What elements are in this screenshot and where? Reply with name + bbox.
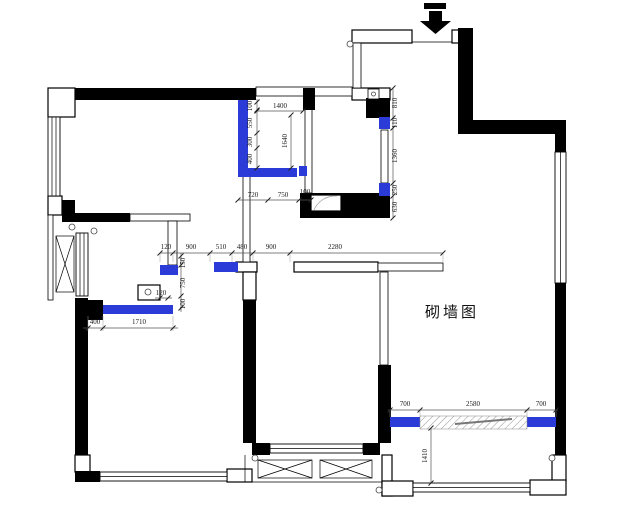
dim-label: 700 bbox=[536, 400, 547, 408]
dim-label: 750 bbox=[179, 277, 187, 288]
dim-label: 900 bbox=[266, 243, 277, 251]
dim-label: 1710 bbox=[132, 318, 147, 326]
dim-label: 720 bbox=[248, 191, 259, 199]
dim-label: 810 bbox=[391, 97, 399, 108]
dim-label: 480 bbox=[237, 243, 248, 251]
watermark-hatch bbox=[420, 416, 527, 429]
paper-background bbox=[0, 0, 640, 515]
dim-label: 120 bbox=[156, 289, 167, 297]
dim-label: 120 bbox=[161, 243, 172, 251]
dim-label: 630 bbox=[391, 201, 399, 212]
dim-label: 2280 bbox=[328, 243, 343, 251]
dim-label: 100 bbox=[300, 188, 311, 196]
dim-label: 700 bbox=[400, 400, 411, 408]
dim-label: 400 bbox=[90, 318, 101, 326]
dim-label: 110 bbox=[391, 117, 399, 128]
dim-label: 150 bbox=[179, 257, 187, 268]
dim-label: 2580 bbox=[466, 400, 481, 408]
dim-label: 750 bbox=[278, 191, 289, 199]
floor-plan-canvas: 100 550 300 400 1400 1640 720 750 100 81… bbox=[0, 0, 640, 515]
dim-label: 100 bbox=[179, 298, 187, 309]
dim-label: 900 bbox=[186, 243, 197, 251]
dim-label: 400 bbox=[246, 153, 254, 164]
dim-label: 1410 bbox=[421, 449, 429, 464]
dim-label: 100 bbox=[246, 100, 254, 111]
dim-label: 300 bbox=[246, 136, 254, 147]
dim-label: 1360 bbox=[391, 149, 399, 164]
plan-title: 砌墙图 bbox=[425, 304, 479, 321]
dim-label: 250 bbox=[391, 184, 399, 195]
dim-label: 1400 bbox=[273, 102, 288, 110]
dim-label: 510 bbox=[216, 243, 227, 251]
dim-label: 550 bbox=[246, 117, 254, 128]
dim-label: 1640 bbox=[281, 134, 289, 149]
